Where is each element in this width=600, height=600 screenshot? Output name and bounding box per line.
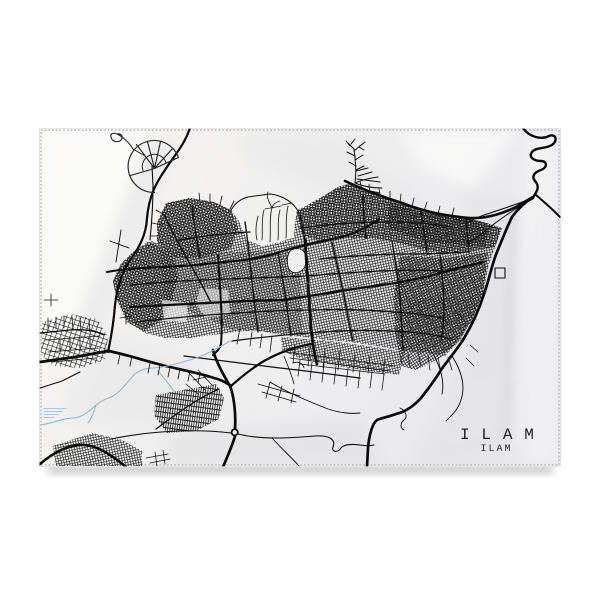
svg-text:I L A M: I L A M [460,426,535,444]
svg-text:ILAM: ILAM [480,444,512,455]
